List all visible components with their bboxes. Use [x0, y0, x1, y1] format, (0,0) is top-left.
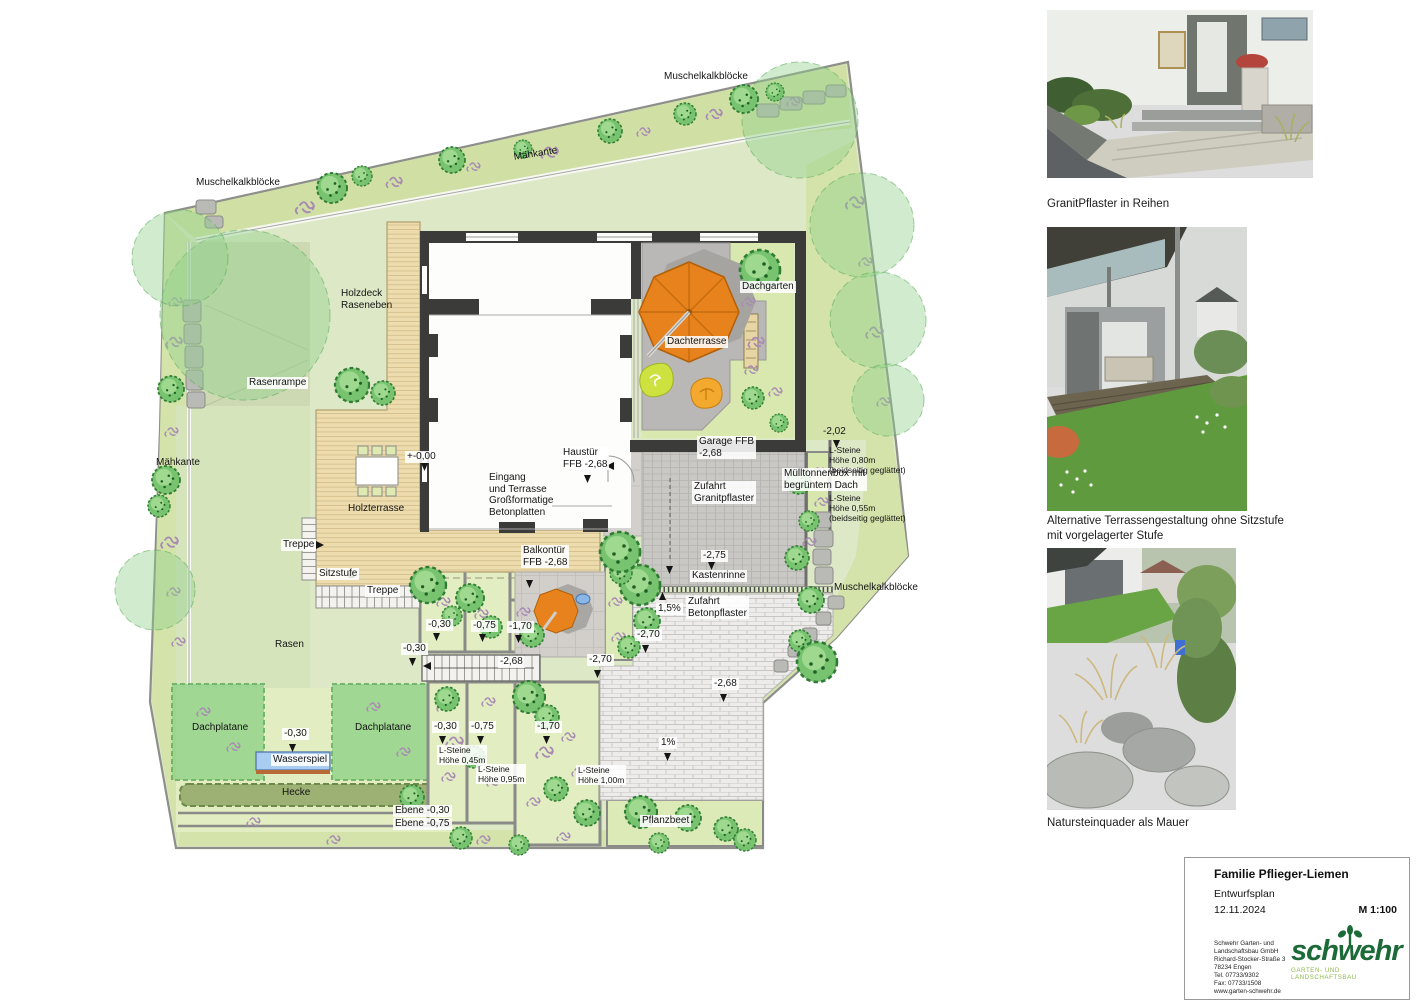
company-line: 78234 Engen	[1214, 964, 1285, 972]
client-name: Familie Pflieger-Liemen	[1214, 867, 1349, 881]
dining-table	[356, 446, 398, 496]
plan-label: -0,30	[282, 728, 309, 740]
plan-label: L-Steine Höhe 1,00m	[576, 765, 626, 785]
plan-label: 1,5%	[656, 603, 683, 615]
plan-label: -2,75	[701, 550, 728, 562]
company-line: Tel. 07733/9302	[1214, 972, 1285, 980]
plan-label: Zufahrt Granitpflaster	[692, 481, 756, 504]
company-line: Richard-Stocker-Straße 3	[1214, 956, 1285, 964]
plan-label: Dachterrasse	[665, 336, 728, 348]
plan-label: -2,70	[587, 654, 614, 666]
photo-terrace-alternative	[1047, 227, 1247, 511]
plan-label: -1,70	[507, 621, 534, 633]
photo-caption: Alternative Terrassengestaltung ohne Sit…	[1047, 514, 1284, 543]
company-line: Fax: 07733/1508	[1214, 980, 1285, 988]
plan-label: -1,70	[535, 721, 562, 733]
plan-label: Hecke	[282, 787, 310, 799]
plan-label: Wasserspiel	[271, 754, 329, 766]
plan-label: -0,30	[432, 721, 459, 733]
logo-tagline: GARTEN- UND LANDSCHAFTSBAU	[1291, 967, 1403, 981]
company-logo: schwehr GARTEN- UND LANDSCHAFTSBAU	[1291, 936, 1403, 981]
plan-label: Ebene -0,30	[393, 805, 452, 817]
plan-label: +-0,00	[405, 451, 438, 463]
plan-label: -0,75	[471, 620, 498, 632]
company-line: Landschaftsbau GmbH	[1214, 948, 1285, 956]
plan-label: L-Steine Höhe 0,80m (beidseitig geglätte…	[829, 445, 906, 475]
plan-label: Dachplatane	[192, 722, 248, 734]
plan-label: Balkontür FFB -2,68	[521, 545, 569, 568]
plan-label: L-Steine Höhe 0,45m	[437, 745, 487, 765]
title-block: Familie Pflieger-Liemen Entwurfsplan 12.…	[1184, 857, 1410, 1000]
plan-scale: M 1:100	[1358, 904, 1397, 916]
plan-label: -2,02	[823, 426, 846, 438]
plan-label: L-Steine Höhe 0,55m (beidseitig geglätte…	[829, 493, 906, 523]
plan-date: 12.11.2024	[1214, 904, 1266, 916]
photo-caption: Natursteinquader als Mauer	[1047, 816, 1189, 831]
photo-granite-paving	[1047, 10, 1313, 178]
company-line: Schwehr Garten- und	[1214, 940, 1285, 948]
plan-label: -2,68	[712, 678, 739, 690]
plan-label: Muschelkalkblöcke	[664, 71, 748, 83]
photo-caption: GranitPflaster in Reihen	[1047, 197, 1169, 212]
plan-label: Treppe	[281, 539, 316, 551]
plan-label: Holzdeck Raseneben	[341, 288, 392, 311]
plan-label: Sitzstufe	[317, 568, 359, 580]
company-address: Schwehr Garten- und Landschaftsbau GmbH …	[1214, 940, 1285, 996]
plan-label: -0,30	[401, 643, 428, 655]
plan-label: Dachgarten	[740, 281, 796, 293]
plan-label: Rasenrampe	[247, 377, 308, 389]
plan-label: Ebene -0,75	[393, 818, 452, 830]
plan-label: Dachplatane	[355, 722, 411, 734]
plan-label: -2,68	[498, 656, 525, 668]
plan-label: Treppe	[365, 585, 400, 597]
photo-stone-wall	[1047, 548, 1236, 810]
plan-label: Pflanzbeet	[640, 815, 691, 827]
plan-label: Holzterrasse	[348, 503, 404, 515]
plan-label: Garage FFB -2,68	[697, 436, 756, 459]
plan-label: Muschelkalkblöcke	[834, 582, 918, 594]
plan-label: L-Steine Höhe 0,95m	[476, 764, 526, 784]
plan-label: Zufahrt Betonpflaster	[686, 596, 749, 619]
plan-label: Muschelkalkblöcke	[196, 177, 280, 189]
plan-label: Haustür FFB -2,68	[561, 447, 609, 470]
plan-label: Rasen	[275, 639, 304, 651]
plan-label: -0,30	[426, 619, 453, 631]
company-line: www.garten-schwehr.de	[1214, 988, 1285, 996]
plan-label: 1%	[659, 737, 677, 749]
plan-label: -0,75	[469, 721, 496, 733]
plan-label: Mähkante	[156, 457, 200, 469]
plan-label: Kastenrinne	[690, 570, 747, 582]
sprout-icon	[1337, 925, 1363, 945]
plan-label: -2,70	[635, 629, 662, 641]
plan-type: Entwurfsplan	[1214, 888, 1275, 900]
entwurfsplan-sheet: { "plan": { "labels": [ {"t":"Muschelkal…	[0, 0, 1417, 1002]
plan-label: Eingang und Terrasse Großformatige Beton…	[489, 472, 553, 518]
